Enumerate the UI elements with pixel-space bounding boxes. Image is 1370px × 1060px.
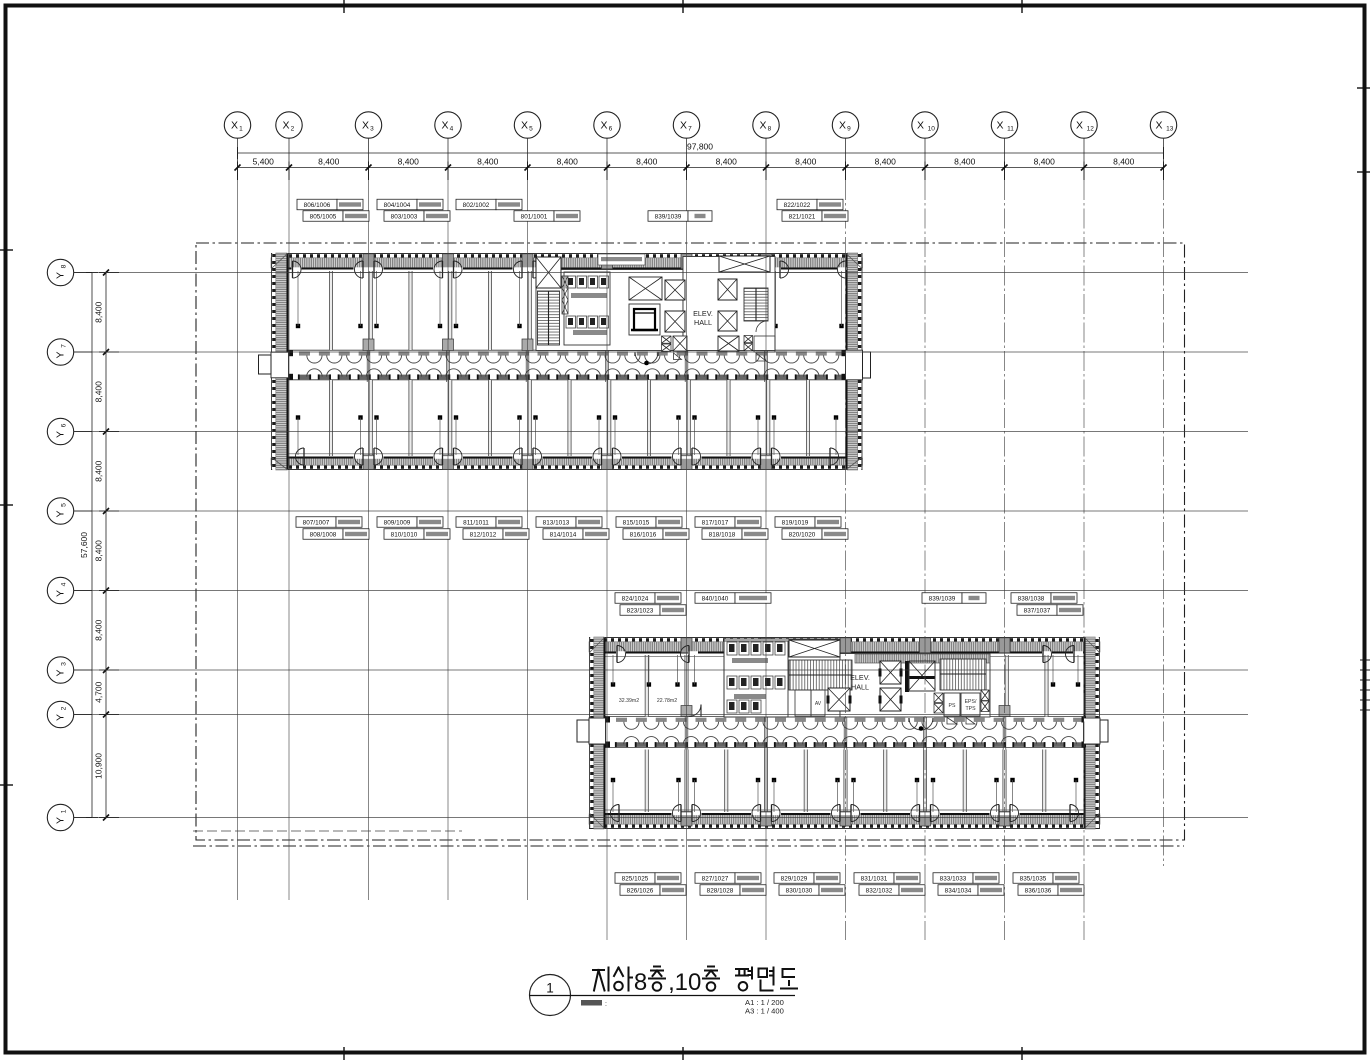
- svg-text:11: 11: [1007, 126, 1014, 133]
- svg-text:4: 4: [450, 126, 454, 133]
- svg-text:Y: Y: [55, 669, 67, 676]
- svg-text:827/1027: 827/1027: [702, 876, 729, 883]
- svg-text:822/1022: 822/1022: [784, 202, 811, 209]
- svg-text:4,700: 4,700: [94, 681, 104, 703]
- svg-text:815/1015: 815/1015: [623, 520, 650, 527]
- svg-text:EPS/: EPS/: [965, 699, 977, 705]
- svg-text:22.78m2: 22.78m2: [657, 698, 677, 704]
- svg-text:1: 1: [546, 981, 554, 996]
- svg-text:832/1032: 832/1032: [866, 888, 893, 895]
- svg-text:ELEV.: ELEV.: [693, 309, 713, 318]
- svg-text:833/1033: 833/1033: [940, 876, 967, 883]
- svg-text:10,900: 10,900: [94, 753, 104, 779]
- svg-text:805/1005: 805/1005: [310, 214, 337, 221]
- svg-text:840/1040: 840/1040: [702, 596, 729, 603]
- svg-text:809/1009: 809/1009: [384, 520, 411, 527]
- svg-text:812/1012: 812/1012: [470, 532, 497, 539]
- svg-text:828/1028: 828/1028: [707, 888, 734, 895]
- svg-text:5: 5: [61, 503, 68, 507]
- svg-text:802/1002: 802/1002: [463, 202, 490, 209]
- svg-text:806/1006: 806/1006: [304, 202, 331, 209]
- svg-text:6: 6: [61, 423, 68, 427]
- svg-text:8,400: 8,400: [94, 619, 104, 641]
- svg-text:8,400: 8,400: [477, 156, 499, 166]
- svg-text:8,400: 8,400: [94, 540, 104, 562]
- svg-text:836/1036: 836/1036: [1025, 888, 1052, 895]
- svg-text:5,400: 5,400: [253, 156, 275, 166]
- svg-text:820/1020: 820/1020: [789, 532, 816, 539]
- svg-text::: :: [605, 1001, 607, 1008]
- svg-text:839/1039: 839/1039: [929, 596, 956, 603]
- svg-text:803/1003: 803/1003: [391, 214, 418, 221]
- svg-text:8,400: 8,400: [94, 301, 104, 323]
- svg-text:821/1021: 821/1021: [789, 214, 816, 221]
- svg-text:8,400: 8,400: [1113, 156, 1135, 166]
- svg-text:PS: PS: [949, 703, 956, 709]
- svg-text:817/1017: 817/1017: [702, 520, 729, 527]
- svg-text:Y: Y: [55, 590, 67, 597]
- svg-text:811/1011: 811/1011: [463, 520, 489, 527]
- svg-text:57,600: 57,600: [79, 532, 89, 558]
- svg-text:8,400: 8,400: [795, 156, 817, 166]
- svg-text:8: 8: [61, 264, 68, 268]
- svg-text:8,400: 8,400: [557, 156, 579, 166]
- svg-text:808/1008: 808/1008: [310, 532, 337, 539]
- svg-text:10: 10: [675, 969, 702, 996]
- svg-text:X: X: [231, 120, 238, 132]
- svg-text:5: 5: [529, 126, 533, 133]
- svg-text:839/1039: 839/1039: [655, 214, 682, 221]
- svg-text:Y: Y: [55, 431, 67, 438]
- svg-text:X: X: [839, 120, 846, 132]
- svg-text:825/1025: 825/1025: [622, 876, 649, 883]
- svg-text:807/1007: 807/1007: [303, 520, 330, 527]
- svg-text:A3 : 1 / 400: A3 : 1 / 400: [745, 1007, 784, 1016]
- svg-text:HALL: HALL: [851, 683, 869, 692]
- svg-text:3: 3: [370, 126, 374, 133]
- svg-text:818/1018: 818/1018: [709, 532, 736, 539]
- svg-text:1: 1: [239, 126, 243, 133]
- svg-text:X: X: [917, 120, 924, 132]
- svg-text:8: 8: [768, 126, 772, 133]
- svg-text:Y: Y: [55, 272, 67, 279]
- svg-text:X: X: [1076, 120, 1083, 132]
- svg-text:804/1004: 804/1004: [384, 202, 411, 209]
- svg-text:32.39m2: 32.39m2: [619, 698, 639, 704]
- svg-text:X: X: [680, 120, 687, 132]
- svg-text:8,400: 8,400: [398, 156, 420, 166]
- svg-text:Y: Y: [55, 351, 67, 358]
- svg-text:AV: AV: [815, 701, 822, 707]
- svg-text:8: 8: [634, 969, 647, 996]
- svg-text:8,400: 8,400: [1034, 156, 1056, 166]
- svg-text:829/1029: 829/1029: [781, 876, 808, 883]
- svg-text:8,400: 8,400: [94, 460, 104, 482]
- svg-text:X: X: [362, 120, 369, 132]
- svg-text:834/1034: 834/1034: [945, 888, 972, 895]
- svg-text:2: 2: [291, 126, 295, 133]
- svg-text:X: X: [996, 120, 1003, 132]
- svg-text:1: 1: [61, 809, 68, 813]
- svg-text:8,400: 8,400: [716, 156, 738, 166]
- svg-text:7: 7: [688, 126, 692, 133]
- svg-text:4: 4: [61, 582, 68, 586]
- svg-text:Y: Y: [55, 510, 67, 517]
- svg-text:823/1023: 823/1023: [627, 608, 654, 615]
- svg-text:Y: Y: [55, 817, 67, 824]
- svg-text:X: X: [521, 120, 528, 132]
- svg-text:97,800: 97,800: [687, 142, 713, 152]
- svg-text:810/1010: 810/1010: [391, 532, 418, 539]
- svg-text:9: 9: [847, 126, 851, 133]
- svg-text:10: 10: [928, 126, 936, 133]
- svg-text:8,400: 8,400: [94, 381, 104, 403]
- svg-text:3: 3: [61, 662, 68, 666]
- svg-text:826/1026: 826/1026: [627, 888, 654, 895]
- svg-text:8,400: 8,400: [636, 156, 658, 166]
- svg-text:837/1037: 837/1037: [1024, 608, 1051, 615]
- svg-text:ELEV.: ELEV.: [850, 673, 870, 682]
- svg-text:813/1013: 813/1013: [543, 520, 570, 527]
- svg-text:838/1038: 838/1038: [1018, 596, 1045, 603]
- svg-text:835/1035: 835/1035: [1020, 876, 1047, 883]
- svg-text:12: 12: [1087, 126, 1095, 133]
- svg-text:814/1014: 814/1014: [550, 532, 577, 539]
- svg-text:X: X: [441, 120, 448, 132]
- svg-text:831/1031: 831/1031: [861, 876, 888, 883]
- svg-text:7: 7: [61, 344, 68, 348]
- svg-text:TPS: TPS: [965, 706, 976, 712]
- svg-text:819/1019: 819/1019: [782, 520, 809, 527]
- svg-text:2: 2: [61, 706, 68, 710]
- svg-text:X: X: [600, 120, 607, 132]
- svg-text:824/1024: 824/1024: [622, 596, 649, 603]
- svg-text:816/1016: 816/1016: [630, 532, 657, 539]
- svg-text:8,400: 8,400: [954, 156, 976, 166]
- svg-text:13: 13: [1166, 126, 1174, 133]
- svg-text:HALL: HALL: [694, 318, 712, 327]
- svg-text:801/1001: 801/1001: [521, 214, 548, 221]
- svg-text:X: X: [282, 120, 289, 132]
- svg-text:X: X: [759, 120, 766, 132]
- svg-text:Y: Y: [55, 714, 67, 721]
- svg-text:X: X: [1155, 120, 1162, 132]
- svg-text:8,400: 8,400: [875, 156, 897, 166]
- svg-text:6: 6: [609, 126, 613, 133]
- svg-text:8,400: 8,400: [318, 156, 340, 166]
- svg-text:830/1030: 830/1030: [786, 888, 813, 895]
